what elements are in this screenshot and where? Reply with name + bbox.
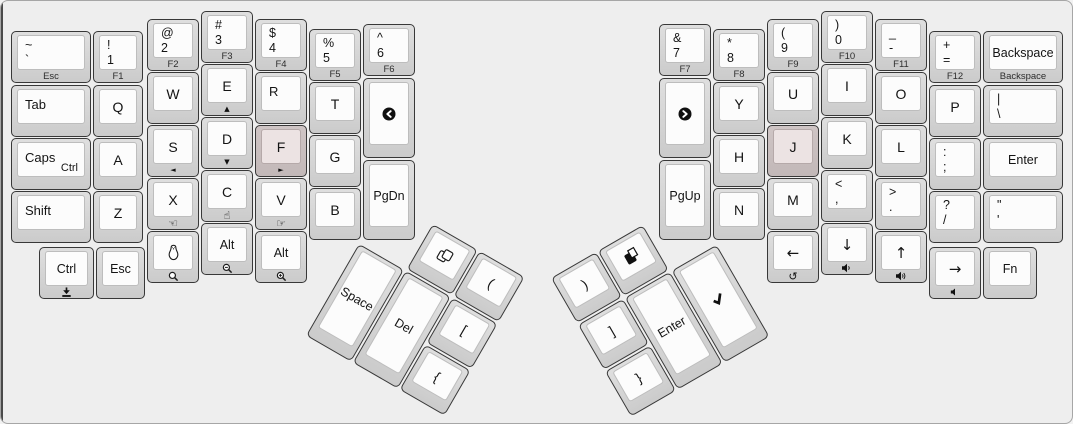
key-label: Backspace bbox=[992, 46, 1053, 60]
key-label: Ctrl bbox=[57, 262, 76, 276]
key-linux[interactable] bbox=[147, 231, 199, 283]
keycap-top: PgDn bbox=[369, 164, 409, 227]
keycap-top: Backspace bbox=[989, 35, 1057, 70]
key-enter[interactable]: Enter bbox=[983, 138, 1063, 190]
key-front-text: F7 bbox=[679, 64, 690, 75]
triangle-left-icon: ◄ bbox=[170, 167, 175, 174]
key-arrow-up[interactable]: ↑ bbox=[875, 231, 927, 283]
key-legends: *8 bbox=[727, 36, 734, 66]
key-legends: @2 bbox=[161, 26, 174, 56]
key-label: A bbox=[113, 152, 122, 168]
key-label: H bbox=[734, 149, 744, 165]
key-front-text: F11 bbox=[893, 59, 909, 70]
key-label: ← bbox=[787, 244, 800, 262]
key-v[interactable]: V☞ bbox=[255, 178, 307, 230]
key-j[interactable]: J bbox=[767, 125, 819, 177]
key-label: Fn bbox=[1003, 262, 1018, 276]
keycap-top: K bbox=[827, 121, 867, 156]
key-slash[interactable]: ?/ bbox=[929, 191, 981, 243]
key-prev-track[interactable] bbox=[363, 78, 415, 158]
hand-pointer-icon: ☝ bbox=[224, 210, 231, 221]
key-shift-legend: # bbox=[215, 18, 222, 33]
linux-penguin-icon bbox=[166, 244, 181, 261]
keycap-top: ^6 bbox=[369, 28, 409, 63]
key-front-legend: F4 bbox=[256, 58, 306, 70]
keycap-top: Enter bbox=[989, 142, 1057, 177]
keycap-top: %5 bbox=[315, 33, 355, 68]
key-label: N bbox=[734, 202, 744, 218]
key-g[interactable]: G bbox=[309, 135, 361, 187]
keycap-top: ( bbox=[465, 257, 517, 307]
key-label: ↓ bbox=[841, 236, 854, 254]
key-w[interactable]: W bbox=[147, 72, 199, 124]
keycap-top: Y bbox=[719, 86, 759, 121]
next-track-icon bbox=[678, 107, 692, 121]
key-front-legend: ◄ bbox=[148, 164, 198, 176]
hand-thumb-right-icon: ☞ bbox=[276, 218, 286, 229]
key-q[interactable]: Q bbox=[93, 85, 143, 137]
keycap-top: ↓ bbox=[827, 227, 867, 262]
keycap-top: Fn bbox=[989, 251, 1031, 286]
key-7[interactable]: &7F7 bbox=[659, 24, 711, 76]
key-h[interactable]: H bbox=[713, 135, 765, 187]
key-base-legend: ' bbox=[997, 213, 1001, 228]
key-legends: <, bbox=[835, 177, 842, 207]
keycap-top: N bbox=[719, 192, 759, 227]
key-front-legend: Backspace bbox=[984, 70, 1062, 82]
key-backspace[interactable]: BackspaceBackspace bbox=[983, 31, 1063, 83]
keycap-top: Alt bbox=[207, 227, 247, 262]
key-4[interactable]: $4F4 bbox=[255, 19, 307, 71]
key-front-legend: F7 bbox=[660, 63, 710, 75]
key-base-legend: 2 bbox=[161, 41, 174, 56]
keycap-top: W bbox=[153, 76, 193, 111]
key-front-text: F3 bbox=[221, 51, 232, 62]
key-front-legend bbox=[40, 286, 93, 298]
key-base-legend: = bbox=[943, 53, 950, 68]
key-front-legend: Esc bbox=[12, 70, 90, 82]
key-shift-legend: ! bbox=[107, 38, 114, 53]
key-label: L bbox=[897, 139, 905, 155]
key-shift-legend: ) bbox=[835, 18, 842, 33]
keycap-top bbox=[605, 231, 657, 281]
key-label: Alt bbox=[220, 238, 235, 252]
keyboard-canvas: (SpaceDel[{)]}Enter~`Esc!1F1@2F2#3F3$4F4… bbox=[0, 0, 1073, 424]
keycap-top: ~` bbox=[17, 35, 85, 70]
key-shift-legend: : bbox=[943, 145, 946, 160]
keycap-top: → bbox=[935, 251, 975, 286]
key-b[interactable]: B bbox=[309, 188, 361, 240]
key-label: J bbox=[790, 139, 797, 155]
key-label: K bbox=[842, 131, 851, 147]
volume-mute-icon bbox=[950, 287, 960, 297]
key-legends: >. bbox=[889, 185, 896, 215]
key-shift-legend: | bbox=[997, 92, 1000, 107]
key-caps[interactable]: CapsCtrl bbox=[11, 138, 91, 190]
keycap-top: @2 bbox=[153, 23, 193, 58]
key-legends: ^6 bbox=[377, 31, 384, 61]
key-label: T bbox=[331, 96, 340, 112]
key-comma[interactable]: <, bbox=[821, 170, 873, 222]
keycap-top: *8 bbox=[719, 33, 759, 68]
keycap-top: ?/ bbox=[935, 195, 975, 230]
zoom-in-icon bbox=[276, 271, 287, 282]
zoom-out-icon bbox=[222, 263, 233, 274]
key-front-legend: F10 bbox=[822, 50, 872, 62]
keycap-top: C bbox=[207, 174, 247, 209]
key-r[interactable]: R bbox=[255, 72, 307, 124]
key-front-legend: F2 bbox=[148, 58, 198, 70]
triangle-up-icon: ▲ bbox=[224, 106, 229, 113]
key-base-legend: 0 bbox=[835, 33, 842, 48]
keycap-top bbox=[369, 82, 409, 145]
key-n[interactable]: N bbox=[713, 188, 765, 240]
keycap-top: A bbox=[99, 142, 137, 177]
key-shift-legend: ( bbox=[781, 26, 788, 41]
key-2[interactable]: @2F2 bbox=[147, 19, 199, 71]
keycap-top: R bbox=[261, 76, 301, 111]
key-front-text: F12 bbox=[947, 71, 963, 82]
key-label: Caps bbox=[25, 150, 55, 165]
key-p[interactable]: P bbox=[929, 85, 981, 137]
key-shift-legend: @ bbox=[161, 26, 174, 41]
key-fn[interactable]: Fn bbox=[983, 247, 1037, 299]
key-front-legend: ► bbox=[256, 164, 306, 176]
key-front-text: Backspace bbox=[1000, 71, 1046, 82]
keycap-top: Alt bbox=[261, 235, 301, 270]
keycap-top: (9 bbox=[773, 23, 813, 58]
keycap-top: >. bbox=[881, 182, 921, 217]
key-s[interactable]: S◄ bbox=[147, 125, 199, 177]
key-front-legend: F9 bbox=[768, 58, 818, 70]
keycap-top: _- bbox=[881, 23, 921, 58]
key-label: I bbox=[845, 78, 849, 94]
key-base-legend: - bbox=[889, 41, 896, 56]
key-l[interactable]: L bbox=[875, 125, 927, 177]
key-u[interactable]: U bbox=[767, 72, 819, 124]
paste-icon bbox=[621, 246, 641, 266]
key-arrow-left[interactable]: ←↺ bbox=[767, 231, 819, 283]
key-front-text: F8 bbox=[733, 69, 744, 80]
key-legends: )0 bbox=[835, 18, 842, 48]
key-legends: += bbox=[943, 38, 950, 68]
keycap-top: H bbox=[719, 139, 759, 174]
keycap-top: Z bbox=[99, 195, 137, 230]
keycap-top: X bbox=[153, 182, 193, 217]
key-6[interactable]: ^6F6 bbox=[363, 24, 415, 76]
key-front-text: F1 bbox=[112, 71, 123, 82]
key-label: Z bbox=[114, 205, 123, 221]
key-label: D bbox=[222, 131, 232, 147]
key-base-legend: / bbox=[943, 213, 950, 228]
volume-down-icon bbox=[841, 263, 853, 273]
key-label: G bbox=[330, 149, 341, 165]
key-front-legend: F3 bbox=[202, 50, 252, 62]
key-front-text: F9 bbox=[787, 59, 798, 70]
key-label: V bbox=[276, 192, 285, 208]
key-base-legend: 1 bbox=[107, 53, 114, 68]
key-label: ( bbox=[485, 275, 497, 291]
key-shift-legend: < bbox=[835, 177, 842, 192]
key-label: E bbox=[222, 78, 231, 94]
key-arrow-right[interactable]: → bbox=[929, 247, 981, 299]
key-label: ] bbox=[606, 322, 617, 338]
key-legends: %5 bbox=[323, 36, 334, 66]
keycap-top bbox=[665, 82, 705, 145]
key-shift-legend: > bbox=[889, 185, 896, 200]
keycap-top: L bbox=[881, 129, 921, 164]
key-tab[interactable]: Tab bbox=[11, 85, 91, 137]
key-d[interactable]: D▼ bbox=[201, 117, 253, 169]
triangle-down-icon: ▼ bbox=[224, 159, 229, 166]
key-base-legend: . bbox=[889, 200, 896, 215]
key-label: C bbox=[222, 184, 232, 200]
key-shift-legend: $ bbox=[269, 26, 276, 41]
key-legends: ~` bbox=[25, 38, 32, 68]
key-base-legend: ; bbox=[943, 160, 946, 175]
keycap-top: M bbox=[773, 182, 813, 217]
key-label: Esc bbox=[110, 262, 131, 276]
key-z[interactable]: Z bbox=[93, 191, 143, 243]
key-lesc[interactable]: Esc bbox=[96, 247, 145, 299]
key-0[interactable]: )0F10 bbox=[821, 11, 873, 63]
key-front-legend bbox=[930, 286, 980, 298]
key-label: ↑ bbox=[895, 244, 908, 262]
key-9[interactable]: (9F9 bbox=[767, 19, 819, 71]
key-front-text: F2 bbox=[167, 59, 178, 70]
key-c[interactable]: C☝ bbox=[201, 170, 253, 222]
key-i[interactable]: I bbox=[821, 64, 873, 116]
hand-thumb-left-icon: ☜ bbox=[168, 218, 178, 229]
key-base-legend: 5 bbox=[323, 51, 334, 66]
key-label: W bbox=[166, 86, 179, 102]
key-lalt1[interactable]: Alt bbox=[201, 223, 253, 275]
key-label: ) bbox=[578, 276, 590, 292]
key-front-text: F10 bbox=[839, 51, 855, 62]
keycap-top: J bbox=[773, 129, 813, 164]
triangle-right-icon: ► bbox=[278, 167, 283, 174]
key-grave[interactable]: ~`Esc bbox=[11, 31, 91, 83]
key-legends: #3 bbox=[215, 18, 222, 48]
keycap-top: CapsCtrl bbox=[17, 142, 85, 177]
keycap-top: Tab bbox=[17, 89, 85, 124]
key-lalt2[interactable]: Alt bbox=[255, 231, 307, 283]
key-base-legend: 8 bbox=[727, 51, 734, 66]
key-front-legend: ☜ bbox=[148, 217, 198, 229]
key-base-legend: 3 bbox=[215, 33, 222, 48]
keycap-top bbox=[153, 235, 193, 270]
key-shift-legend: " bbox=[997, 198, 1001, 213]
key-1[interactable]: !1F1 bbox=[93, 31, 143, 83]
key-front-legend: F8 bbox=[714, 68, 764, 80]
key-label: Alt bbox=[274, 246, 289, 260]
keycap-top: I bbox=[827, 68, 867, 103]
key-legends: ?/ bbox=[943, 198, 950, 228]
key-base-legend: 4 bbox=[269, 41, 276, 56]
key-front-legend: F5 bbox=[310, 68, 360, 80]
key-label: Tab bbox=[25, 97, 46, 112]
key-arrow-down[interactable]: ↓ bbox=[821, 223, 873, 275]
key-label: PgDn bbox=[373, 189, 404, 203]
key-o[interactable]: O bbox=[875, 72, 927, 124]
keycap-top: PgUp bbox=[665, 164, 705, 227]
key-label: Space bbox=[338, 284, 376, 314]
keycap-top: P bbox=[935, 89, 975, 124]
search-icon bbox=[168, 271, 179, 282]
check-icon bbox=[707, 289, 729, 311]
keycap-top: E bbox=[207, 68, 247, 103]
undo-icon: ↺ bbox=[788, 271, 797, 282]
key-front-legend bbox=[256, 270, 306, 282]
key-legends: _- bbox=[889, 26, 896, 56]
key-label: } bbox=[632, 369, 644, 385]
key-pgdn[interactable]: PgDn bbox=[363, 160, 415, 240]
key-minus[interactable]: _-F11 bbox=[875, 19, 927, 71]
key-corner-label: Ctrl bbox=[61, 162, 78, 174]
key-label: U bbox=[788, 86, 798, 102]
key-shift-legend: ^ bbox=[377, 31, 384, 46]
key-base-legend: , bbox=[835, 192, 842, 207]
key-f[interactable]: F► bbox=[255, 125, 307, 177]
key-shift-legend: & bbox=[673, 31, 681, 46]
key-8[interactable]: *8F8 bbox=[713, 29, 765, 81]
keycap-top: D bbox=[207, 121, 247, 156]
key-front-text: F6 bbox=[383, 64, 394, 75]
key-label: X bbox=[168, 192, 177, 208]
key-legends: !1 bbox=[107, 38, 114, 68]
keycap-top: Esc bbox=[102, 251, 139, 286]
key-label: P bbox=[950, 99, 959, 115]
key-front-legend: F12 bbox=[930, 70, 980, 82]
key-legends: :; bbox=[943, 145, 946, 175]
key-front-legend: ↺ bbox=[768, 270, 818, 282]
key-label: Q bbox=[113, 99, 124, 115]
key-legends: (9 bbox=[781, 26, 788, 56]
keycap-top: #3 bbox=[207, 15, 247, 50]
key-base-legend: 6 bbox=[377, 46, 384, 61]
keycap-top: ) bbox=[558, 258, 610, 308]
keycap-top: :; bbox=[935, 142, 975, 177]
key-front-legend: ☝ bbox=[202, 209, 252, 221]
key-label: Enter bbox=[1008, 153, 1038, 167]
key-shift-legend: + bbox=[943, 38, 950, 53]
keycap-top: F bbox=[261, 129, 301, 164]
key-front-legend bbox=[148, 270, 198, 282]
volume-up-icon bbox=[895, 271, 907, 281]
key-front-text: Esc bbox=[43, 71, 59, 82]
key-shift-legend: * bbox=[727, 36, 734, 51]
key-shift-legend: ~ bbox=[25, 38, 32, 53]
key-pgup[interactable]: PgUp bbox=[659, 160, 711, 240]
key-label: Y bbox=[734, 96, 743, 112]
key-quote[interactable]: "' bbox=[983, 191, 1063, 243]
window-left-edge bbox=[1, 1, 3, 423]
keycap-top: T bbox=[315, 86, 355, 121]
key-shift-legend: _ bbox=[889, 26, 896, 41]
key-t[interactable]: T bbox=[309, 82, 361, 134]
keycap-top: )0 bbox=[827, 15, 867, 50]
key-shift[interactable]: Shift bbox=[11, 191, 91, 243]
key-label: Shift bbox=[25, 203, 51, 218]
key-e[interactable]: E▲ bbox=[201, 64, 253, 116]
key-lctrl[interactable]: Ctrl bbox=[39, 247, 94, 299]
key-base-legend: 7 bbox=[673, 46, 681, 61]
keycap-top: &7 bbox=[665, 28, 705, 63]
key-3[interactable]: #3F3 bbox=[201, 11, 253, 63]
key-legends: |\ bbox=[997, 92, 1000, 122]
key-front-text: F4 bbox=[275, 59, 286, 70]
key-shift-legend: ? bbox=[943, 198, 950, 213]
keycap-top: Ctrl bbox=[45, 251, 88, 286]
key-m[interactable]: M bbox=[767, 178, 819, 230]
key-front-legend: ☞ bbox=[256, 217, 306, 229]
keycap-top: += bbox=[935, 35, 975, 70]
keycap-top: S bbox=[153, 129, 193, 164]
key-front-text: F5 bbox=[329, 69, 340, 80]
keycap-top bbox=[418, 230, 470, 280]
keycap-top: "' bbox=[989, 195, 1057, 230]
key-a[interactable]: A bbox=[93, 138, 143, 190]
key-5[interactable]: %5F5 bbox=[309, 29, 361, 81]
key-label: B bbox=[330, 202, 339, 218]
keycap-top: |\ bbox=[989, 89, 1057, 124]
keycap-top: !1 bbox=[99, 35, 137, 70]
key-equals[interactable]: +=F12 bbox=[929, 31, 981, 83]
key-label: Del bbox=[392, 315, 415, 337]
keycap-top: Shift bbox=[17, 195, 85, 230]
key-semicolon[interactable]: :; bbox=[929, 138, 981, 190]
key-label: [ bbox=[459, 321, 470, 337]
key-front-legend: ▲ bbox=[202, 103, 252, 115]
key-k[interactable]: K bbox=[821, 117, 873, 169]
keycap-top: G bbox=[315, 139, 355, 174]
key-front-legend: F6 bbox=[364, 63, 414, 75]
key-front-legend bbox=[876, 270, 926, 282]
key-period[interactable]: >. bbox=[875, 178, 927, 230]
key-label: PgUp bbox=[669, 189, 700, 203]
key-label: M bbox=[787, 192, 799, 208]
key-front-legend bbox=[202, 262, 252, 274]
key-label: Enter bbox=[655, 313, 688, 340]
key-x[interactable]: X☜ bbox=[147, 178, 199, 230]
keycap-top: Q bbox=[99, 89, 137, 124]
key-label: O bbox=[896, 86, 907, 102]
key-legends: "' bbox=[997, 198, 1001, 228]
keycap-top: B bbox=[315, 192, 355, 227]
key-legends: &7 bbox=[673, 31, 681, 61]
key-base-legend: ` bbox=[25, 53, 32, 68]
copy-icon bbox=[434, 245, 454, 265]
key-shift-legend: % bbox=[323, 36, 334, 51]
key-label: → bbox=[949, 260, 962, 278]
key-label: S bbox=[168, 139, 177, 155]
keycap-top: ↑ bbox=[881, 235, 921, 270]
key-front-legend: F1 bbox=[94, 70, 142, 82]
key-label: R bbox=[269, 84, 278, 99]
key-front-legend bbox=[822, 262, 872, 274]
keycap-top: $4 bbox=[261, 23, 301, 58]
prev-track-icon bbox=[382, 107, 396, 121]
key-front-legend: F11 bbox=[876, 58, 926, 70]
keycap-top: V bbox=[261, 182, 301, 217]
key-label: { bbox=[431, 368, 443, 384]
key-front-legend: ▼ bbox=[202, 156, 252, 168]
key-backslash[interactable]: |\ bbox=[983, 85, 1063, 137]
keycap-top: O bbox=[881, 76, 921, 111]
key-next-track[interactable] bbox=[659, 78, 711, 158]
key-label: F bbox=[277, 139, 286, 155]
key-y[interactable]: Y bbox=[713, 82, 765, 134]
